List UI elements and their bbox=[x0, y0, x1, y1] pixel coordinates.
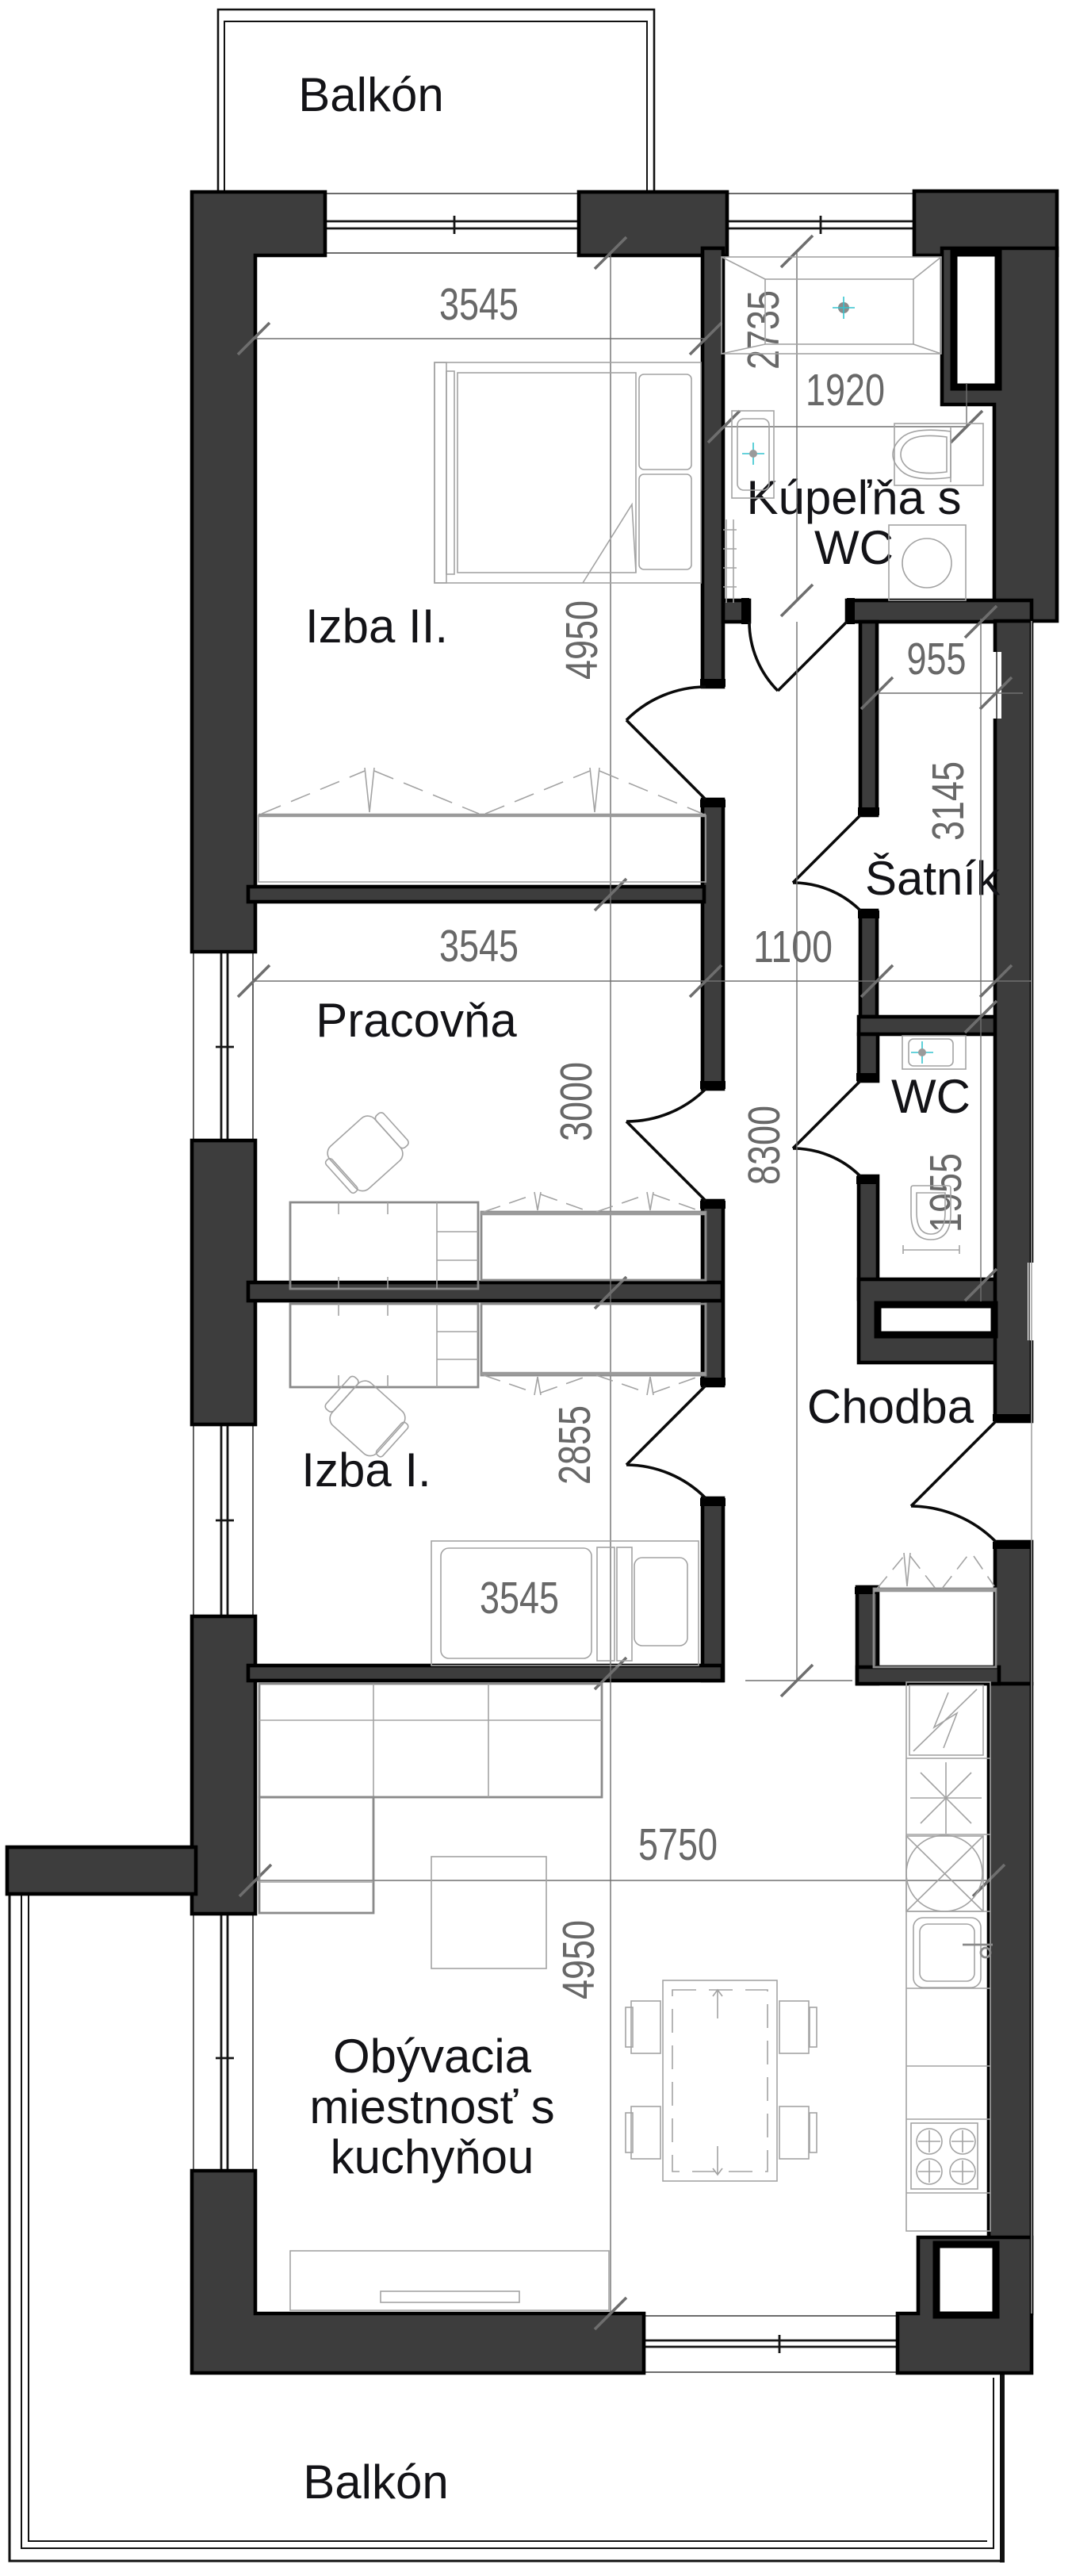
svg-text:Balkón: Balkón bbox=[303, 2455, 448, 2509]
svg-text:Pracovňa: Pracovňa bbox=[316, 994, 517, 1047]
svg-text:3000: 3000 bbox=[551, 1062, 602, 1141]
svg-text:4950: 4950 bbox=[557, 600, 607, 680]
svg-text:3545: 3545 bbox=[480, 1573, 559, 1623]
svg-text:4950: 4950 bbox=[553, 1920, 604, 1999]
svg-text:8300: 8300 bbox=[739, 1106, 790, 1185]
svg-text:Obývacia: Obývacia bbox=[333, 2030, 532, 2083]
svg-text:1920: 1920 bbox=[806, 365, 885, 416]
svg-text:Izba I.: Izba I. bbox=[301, 1443, 431, 1497]
svg-text:3545: 3545 bbox=[439, 279, 519, 330]
svg-text:miestnosť s: miestnosť s bbox=[309, 2080, 554, 2133]
svg-text:2735: 2735 bbox=[738, 290, 789, 370]
svg-text:3545: 3545 bbox=[439, 921, 519, 972]
svg-text:955: 955 bbox=[907, 634, 967, 684]
svg-text:1100: 1100 bbox=[753, 922, 833, 972]
svg-text:WC: WC bbox=[891, 1070, 971, 1123]
svg-text:Chodba: Chodba bbox=[807, 1380, 974, 1433]
svg-text:Balkón: Balkón bbox=[298, 68, 443, 121]
svg-text:5750: 5750 bbox=[638, 1819, 718, 1870]
svg-text:kuchyňou: kuchyňou bbox=[331, 2130, 534, 2183]
svg-text:Izba II.: Izba II. bbox=[305, 600, 448, 653]
svg-text:3145: 3145 bbox=[923, 761, 974, 841]
svg-text:2855: 2855 bbox=[549, 1405, 600, 1485]
svg-text:WC: WC bbox=[814, 521, 894, 574]
